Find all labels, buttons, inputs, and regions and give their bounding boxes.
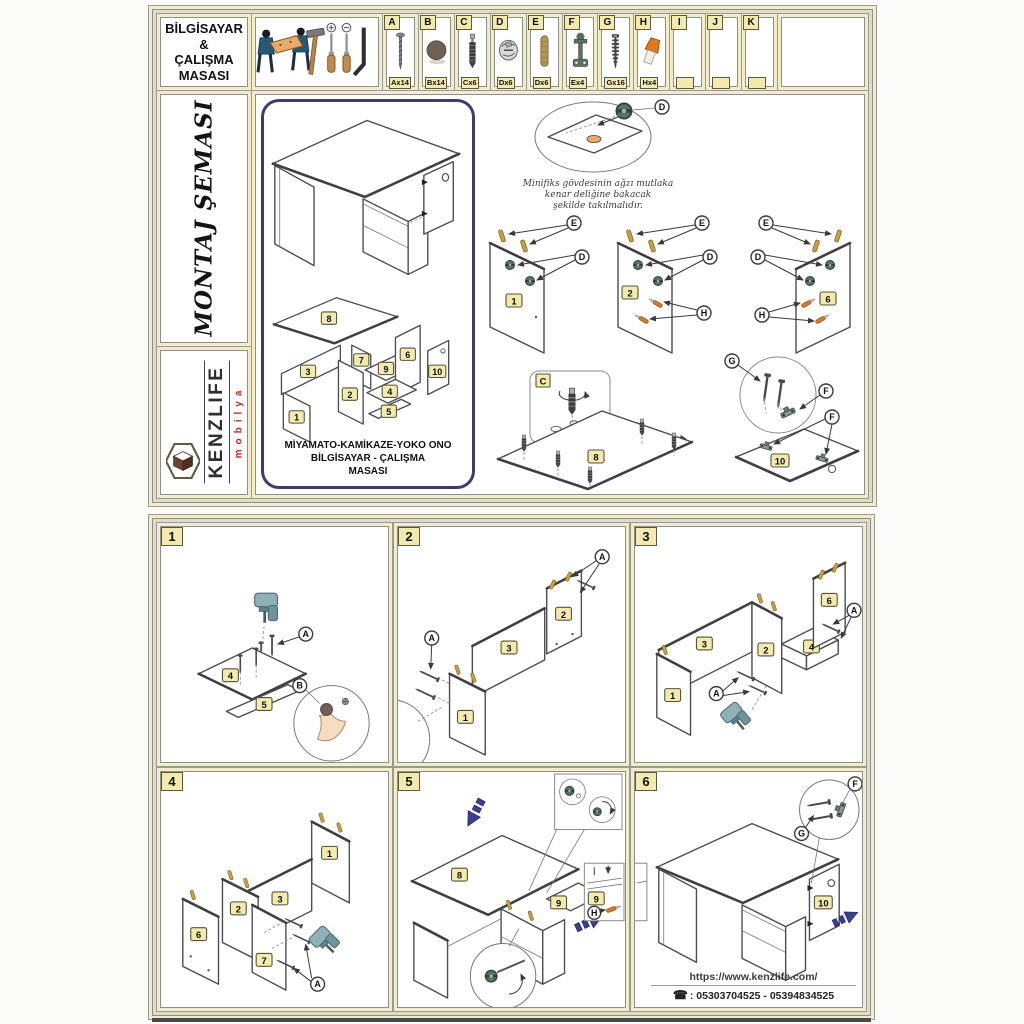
hardware-letter: I xyxy=(671,15,687,30)
hardware-qty: Ax14 xyxy=(389,77,411,89)
hardware-letter: E xyxy=(528,15,544,30)
scan-bottom-edge xyxy=(152,1018,871,1022)
part-tag-2: 2 xyxy=(758,643,774,656)
hardware-box-c: C Cx6 xyxy=(458,17,487,87)
svg-text:C: C xyxy=(540,377,547,388)
svg-text:D: D xyxy=(755,252,762,262)
part-tag-1: 1 xyxy=(457,710,473,723)
svg-text:1: 1 xyxy=(327,848,332,859)
hardware-qty: Ex4 xyxy=(569,77,587,89)
phone-icon: ☎ xyxy=(673,988,688,1002)
part-tag-4: 4 xyxy=(222,669,238,682)
part-tag-8: 8 xyxy=(321,312,336,324)
step-3-illustration: 3 1 2 4 6 A A xyxy=(635,527,862,762)
blue-arrow-down xyxy=(462,797,488,830)
part-tag-10: 10 xyxy=(814,896,832,909)
phone-numbers: : 05303704525 - 05394834525 xyxy=(690,990,834,1002)
hardware-box-k: K xyxy=(745,17,774,87)
hardware-box-f: F Ex4 xyxy=(566,17,595,87)
svg-text:2: 2 xyxy=(561,609,566,620)
main-row: MONTAJ ŞEMASI KENZLIFE mobilya xyxy=(160,94,865,495)
brand-logo-box: KENZLIFE mobilya xyxy=(160,350,248,495)
svg-text:7: 7 xyxy=(359,356,364,366)
part-tag-10: 10 xyxy=(771,454,789,468)
part-tag-1: 1 xyxy=(289,411,304,423)
part-tag-5: 5 xyxy=(381,405,396,417)
hardware-box-extra xyxy=(781,17,865,87)
part-tag-3: 3 xyxy=(696,637,712,650)
step-2-illustration: 3 2 A 1 A xyxy=(398,527,625,762)
hardware-qty xyxy=(748,77,766,89)
svg-text:A: A xyxy=(713,689,720,699)
callout-f: F xyxy=(825,410,839,424)
callout-g: G xyxy=(725,354,739,368)
svg-text:10: 10 xyxy=(432,367,442,377)
hardware-letter: K xyxy=(743,15,759,30)
part-tag-5: 5 xyxy=(256,698,272,711)
svg-text:7: 7 xyxy=(261,955,266,966)
svg-text:A: A xyxy=(851,605,858,615)
svg-text:1: 1 xyxy=(511,297,517,308)
part-tag-3: 3 xyxy=(300,365,315,377)
footer-divider xyxy=(651,985,856,986)
website-text: https://www.kenzlife.com/ xyxy=(651,971,856,983)
step-number: 6 xyxy=(635,772,657,791)
title-line: ÇALIŞMA xyxy=(161,52,247,68)
part-tag-6: 6 xyxy=(820,292,836,306)
svg-text:F: F xyxy=(852,779,858,789)
svg-text:H: H xyxy=(591,908,597,918)
hardware-box-j: J xyxy=(709,17,738,87)
callout-a: A xyxy=(709,687,723,701)
svg-text:6: 6 xyxy=(196,929,201,940)
step-cell-4: 4 1 3 2 6 7 xyxy=(160,771,389,1008)
part-tag-3: 3 xyxy=(272,892,288,905)
svg-text:A: A xyxy=(428,633,435,643)
svg-text:A: A xyxy=(303,629,310,639)
callout-d: D xyxy=(575,250,589,264)
svg-text:A: A xyxy=(314,979,321,989)
title-box: BİLGİSAYAR & ÇALIŞMA MASASI xyxy=(160,17,248,87)
hardware-letter: D xyxy=(492,15,508,30)
svg-text:6: 6 xyxy=(825,295,830,306)
part-tag-6: 6 xyxy=(191,928,207,941)
svg-text:D: D xyxy=(579,252,586,262)
svg-text:2: 2 xyxy=(627,289,632,300)
svg-text:10: 10 xyxy=(775,457,786,468)
hardware-qty: Hx4 xyxy=(640,77,658,89)
product-name: MİYAMATO-KAMİKAZE-YOKO ONO BİLGİSAYAR - … xyxy=(264,439,472,478)
hardware-box-g: G Gx16 xyxy=(601,17,630,87)
hardware-qty: Gx16 xyxy=(604,77,626,89)
callout-d: D xyxy=(655,100,669,114)
callout-e: E xyxy=(695,216,709,230)
svg-text:5: 5 xyxy=(261,699,266,710)
callout-a: A xyxy=(299,627,313,641)
part-tag-2: 2 xyxy=(230,902,246,915)
svg-text:3: 3 xyxy=(702,638,707,649)
hardware-qty xyxy=(676,77,694,89)
svg-text:F: F xyxy=(829,412,835,422)
kenzlife-logo-icon xyxy=(166,442,200,480)
title-line: BİLGİSAYAR xyxy=(161,21,247,37)
step-number: 5 xyxy=(398,772,420,791)
svg-text:6: 6 xyxy=(405,350,410,360)
callout-a: A xyxy=(595,550,609,564)
svg-text:3: 3 xyxy=(306,367,311,377)
step-cell-6: 6 10 F xyxy=(634,771,863,1008)
part-tag-9: 9 xyxy=(551,896,567,909)
callout-a: A xyxy=(311,977,325,991)
part-tag-7: 7 xyxy=(354,354,369,366)
part-tag-1: 1 xyxy=(322,846,338,859)
title-line: MASASI xyxy=(161,68,247,84)
hardware-letter: J xyxy=(707,15,723,30)
panel-2-preparation: E D H 2 xyxy=(618,216,717,353)
tools-clipart xyxy=(256,18,378,86)
hardware-box-b: B Bx14 xyxy=(422,17,451,87)
svg-text:E: E xyxy=(571,218,577,228)
svg-text:6: 6 xyxy=(827,595,832,606)
svg-text:5: 5 xyxy=(386,407,391,417)
hardware-letter: F xyxy=(564,15,580,30)
brand-name: KENZLIFE xyxy=(204,361,230,484)
cap-detail-circle: B xyxy=(293,679,369,761)
svg-text:2: 2 xyxy=(347,390,352,400)
flat-screwdriver-icon xyxy=(342,23,351,72)
callout-h: H xyxy=(755,308,769,322)
minifix-note: Minifiks gövdesinin ağzı mutlaka kenar d… xyxy=(500,179,696,212)
panel-6-preparation: E D H 6 xyxy=(751,216,850,353)
hardware-qty: Dx6 xyxy=(497,77,515,89)
part-tag-2: 2 xyxy=(556,607,572,620)
callout-b: B xyxy=(293,679,307,693)
step-4-illustration: 1 3 2 6 7 A xyxy=(161,772,388,1007)
minifix-detail-drawing: D xyxy=(535,100,669,172)
step-number: 2 xyxy=(398,527,420,546)
svg-text:E: E xyxy=(763,218,769,228)
exploded-view-drawing: 8 3 1 7 2 9 6 10 4 xyxy=(265,292,467,444)
header-row: BİLGİSAYAR & ÇALIŞMA MASASI xyxy=(160,17,865,87)
right-diagrams: D E D xyxy=(478,95,862,493)
svg-text:8: 8 xyxy=(593,453,598,464)
phillips-screwdriver-icon xyxy=(327,23,336,72)
hardware-box-h: H Hx4 xyxy=(637,17,666,87)
svg-text:3: 3 xyxy=(506,642,511,653)
svg-text:F: F xyxy=(823,386,829,396)
svg-text:G: G xyxy=(798,828,805,838)
callout-h: H xyxy=(588,906,601,919)
workers-carrying-panel-icon xyxy=(258,28,309,73)
step-number: 3 xyxy=(635,527,657,546)
part-tag-4: 4 xyxy=(382,385,397,397)
footer: https://www.kenzlife.com/ ☎: 05303704525… xyxy=(651,971,856,1002)
callout-f: F xyxy=(819,384,833,398)
callout-h: H xyxy=(697,306,711,320)
part-tag-6: 6 xyxy=(400,348,415,360)
phone-line: ☎: 05303704525 - 05394834525 xyxy=(651,988,856,1002)
panel-8-preparation: 8 xyxy=(498,411,692,489)
hardware-letter: H xyxy=(635,15,651,30)
svg-text:B: B xyxy=(297,681,304,691)
cap-direction-detail-box: 9 H xyxy=(584,863,624,920)
diagram-area: 8 3 1 7 2 9 6 10 4 xyxy=(255,94,865,495)
scanned-assembly-sheet: { "header": { "title_lines": ["BİLGİSAYA… xyxy=(0,0,1024,1024)
svg-text:1: 1 xyxy=(670,690,675,701)
hardware-qty xyxy=(712,77,730,89)
svg-text:4: 4 xyxy=(228,670,234,681)
hardware-qty: Bx14 xyxy=(425,77,447,89)
hardware-qty: Dx6 xyxy=(533,77,551,89)
svg-text:H: H xyxy=(759,310,766,320)
svg-text:3: 3 xyxy=(277,893,282,904)
part-tag-1: 1 xyxy=(665,689,681,702)
assembled-desk-drawing xyxy=(265,106,467,284)
callout-a: A xyxy=(847,603,861,617)
part-tag-8: 8 xyxy=(452,868,468,881)
callout-c-tag: C xyxy=(536,374,550,388)
callout-d: D xyxy=(751,250,765,264)
callout-e: E xyxy=(567,216,581,230)
hardware-qty: Cx6 xyxy=(461,77,479,89)
hardware-letter: C xyxy=(456,15,472,30)
hinge-screw-detail: G F xyxy=(725,354,833,433)
svg-text:G: G xyxy=(728,356,735,366)
svg-text:8: 8 xyxy=(457,870,462,881)
svg-text:D: D xyxy=(659,102,666,112)
product-panel: 8 3 1 7 2 9 6 10 4 xyxy=(261,99,475,489)
step-cell-2: 2 3 2 A 1 A xyxy=(397,526,626,763)
svg-text:A: A xyxy=(599,552,606,562)
tools-illustration-box xyxy=(255,17,379,87)
svg-text:H: H xyxy=(701,308,708,318)
step-number: 1 xyxy=(161,527,183,546)
step-5-illustration: 8 9 xyxy=(398,772,625,1007)
allen-key-icon xyxy=(356,30,364,74)
svg-text:1: 1 xyxy=(463,712,468,723)
svg-text:4: 4 xyxy=(387,387,392,397)
part-tag-7: 7 xyxy=(256,953,272,966)
title-line: & xyxy=(161,37,247,53)
hardware-letter: B xyxy=(420,15,436,30)
step-cell-5: 5 8 9 xyxy=(397,771,626,1008)
callout-f: F xyxy=(848,777,862,791)
svg-text:2: 2 xyxy=(763,644,768,655)
part-tag-2: 2 xyxy=(342,388,357,400)
top-section: BİLGİSAYAR & ÇALIŞMA MASASI xyxy=(152,9,873,503)
step-number: 4 xyxy=(161,772,183,791)
part-tag-2: 2 xyxy=(622,286,638,300)
svg-text:D: D xyxy=(707,252,714,262)
step-cell-1: 1 A 4 5 B xyxy=(160,526,389,763)
svg-text:1: 1 xyxy=(294,413,299,423)
panel-1-preparation: E D 1 xyxy=(490,216,589,353)
svg-text:E: E xyxy=(699,218,705,228)
part-tag-8: 8 xyxy=(588,450,604,464)
part-tag-9: 9 xyxy=(378,362,393,374)
hardware-box-e: E Dx6 xyxy=(530,17,559,87)
step-cell-3: 3 3 1 2 4 6 A xyxy=(634,526,863,763)
svg-text:9: 9 xyxy=(594,893,599,904)
hardware-box-i: I xyxy=(673,17,702,87)
part-tag-3: 3 xyxy=(501,641,517,654)
left-column: MONTAJ ŞEMASI KENZLIFE mobilya xyxy=(160,94,248,495)
callout-a: A xyxy=(425,631,439,645)
callout-e: E xyxy=(759,216,773,230)
assembly-steps-grid: 1 A 4 5 B xyxy=(152,518,871,1016)
montaj-semasi-box: MONTAJ ŞEMASI xyxy=(160,94,248,343)
hardware-box-a: A Ax14 xyxy=(386,17,415,87)
brand-subtitle: mobilya xyxy=(234,386,245,459)
svg-text:8: 8 xyxy=(326,314,331,324)
part-tag-6: 6 xyxy=(821,593,837,606)
svg-text:9: 9 xyxy=(383,364,388,374)
part-tag-1: 1 xyxy=(506,294,522,308)
hardware-box-d: D Dx6 xyxy=(494,17,523,87)
svg-text:9: 9 xyxy=(556,897,561,908)
svg-text:2: 2 xyxy=(236,903,241,914)
hardware-letter: A xyxy=(384,15,400,30)
montaj-semasi-title: MONTAJ ŞEMASI xyxy=(191,100,218,337)
part-tag-9: 9 xyxy=(588,892,604,905)
step-1-illustration: A 4 5 B xyxy=(161,527,388,762)
hardware-letter: G xyxy=(599,15,615,30)
callout-d: D xyxy=(703,250,717,264)
svg-text:10: 10 xyxy=(818,897,828,908)
callout-g: G xyxy=(795,827,809,841)
part-tag-10: 10 xyxy=(429,365,446,377)
panel-preparation-diagrams: D E D xyxy=(478,95,862,493)
